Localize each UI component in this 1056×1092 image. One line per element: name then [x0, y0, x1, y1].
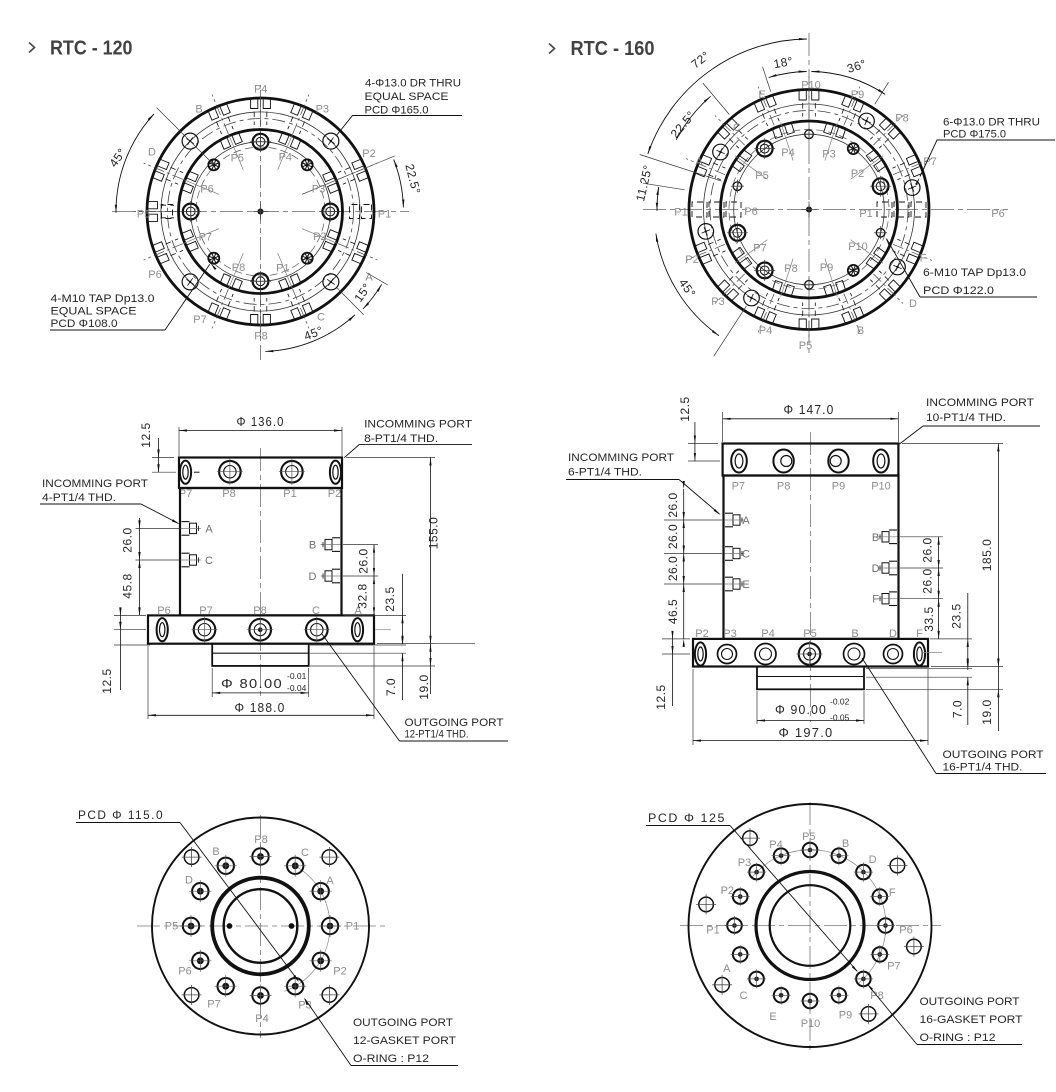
svg-text:P5: P5 [755, 170, 768, 182]
svg-text:26.0: 26.0 [121, 527, 135, 552]
svg-text:OUTGOING PORT: OUTGOING PORT [353, 1017, 453, 1029]
svg-text:155.0: 155.0 [427, 517, 441, 550]
svg-text:OUTGOING PORT: OUTGOING PORT [943, 749, 1044, 761]
svg-text:Φ 147.0: Φ 147.0 [784, 403, 835, 417]
svg-text:A: A [365, 272, 373, 284]
svg-text:B: B [309, 540, 316, 552]
svg-text:C: C [317, 312, 325, 324]
svg-text:A: A [205, 523, 213, 535]
svg-text:P1: P1 [283, 488, 296, 500]
svg-text:C: C [205, 555, 213, 567]
svg-text:OUTGOING PORT: OUTGOING PORT [920, 996, 1020, 1008]
svg-text:F: F [889, 887, 896, 899]
svg-text:P7: P7 [199, 605, 212, 617]
svg-text:P7: P7 [732, 481, 745, 493]
svg-text:P4: P4 [759, 325, 772, 337]
svg-text:INCOMMING PORT: INCOMMING PORT [364, 419, 472, 431]
svg-text:26.0: 26.0 [666, 556, 680, 581]
svg-text:P2: P2 [362, 148, 375, 160]
svg-text:185.0: 185.0 [980, 539, 994, 572]
svg-text:P4: P4 [781, 147, 794, 159]
svg-text:O-RING : P12: O-RING : P12 [920, 1032, 996, 1044]
svg-text:E: E [769, 1011, 776, 1023]
svg-text:Φ 136.0: Φ 136.0 [237, 415, 285, 429]
svg-text:P6: P6 [200, 183, 213, 195]
svg-text:B: B [851, 628, 858, 640]
svg-text:P1: P1 [346, 921, 359, 933]
svg-text:P6: P6 [157, 605, 170, 617]
svg-text:33.5: 33.5 [922, 606, 936, 631]
svg-text:F: F [920, 253, 927, 265]
svg-text:P1: P1 [706, 925, 719, 937]
svg-text:D: D [909, 298, 917, 310]
svg-text:12.5: 12.5 [139, 422, 153, 447]
svg-text:Φ 90.00: Φ 90.00 [775, 702, 827, 717]
svg-text:P4: P4 [761, 628, 774, 640]
svg-text:PCD Φ 115.0: PCD Φ 115.0 [78, 808, 164, 822]
svg-text:P10: P10 [871, 481, 891, 493]
svg-text:12.5: 12.5 [678, 396, 692, 421]
svg-text:A: A [695, 156, 703, 168]
svg-text:P6: P6 [899, 925, 912, 937]
svg-text:E: E [742, 579, 749, 591]
svg-text:P2: P2 [328, 488, 341, 500]
svg-text:26.0: 26.0 [357, 548, 371, 573]
svg-text:6-M10 TAP Dp13.0: 6-M10 TAP Dp13.0 [923, 267, 1026, 279]
svg-text:D: D [309, 571, 317, 583]
svg-text:RTC - 160: RTC - 160 [571, 37, 655, 60]
svg-text:P2: P2 [721, 885, 734, 897]
svg-text:C: C [312, 605, 320, 617]
svg-text:B: B [195, 103, 202, 115]
svg-text:23.5: 23.5 [383, 586, 397, 611]
svg-text:19.0: 19.0 [417, 674, 431, 699]
svg-text:P2: P2 [685, 254, 698, 266]
svg-text:P5: P5 [803, 628, 816, 640]
svg-text:A: A [742, 515, 750, 527]
svg-text:P5: P5 [802, 831, 815, 843]
svg-text:45.8: 45.8 [121, 573, 135, 598]
svg-text:P2: P2 [333, 966, 346, 978]
svg-text:P9: P9 [820, 262, 833, 274]
svg-text:26.0: 26.0 [921, 568, 935, 593]
svg-text:P4: P4 [769, 839, 782, 851]
svg-text:A: A [326, 875, 334, 887]
svg-text:P6: P6 [991, 208, 1004, 220]
svg-text:C: C [733, 122, 741, 134]
svg-text:23.5: 23.5 [950, 603, 964, 628]
svg-text:PCD Φ122.0: PCD Φ122.0 [923, 285, 994, 297]
svg-text:P8: P8 [222, 488, 235, 500]
svg-text:P4: P4 [255, 1013, 268, 1025]
svg-text:32.8: 32.8 [356, 583, 370, 608]
svg-text:6-Φ13.0 DR THRU: 6-Φ13.0 DR THRU [943, 117, 1040, 129]
svg-text:EQUAL SPACE: EQUAL SPACE [365, 91, 449, 103]
svg-text:-0.02: -0.02 [830, 697, 850, 707]
svg-text:P1: P1 [674, 207, 687, 219]
svg-text:P8: P8 [895, 113, 908, 125]
svg-text:P7: P7 [199, 231, 212, 243]
svg-text:P5: P5 [231, 153, 244, 165]
svg-text:C: C [301, 847, 309, 859]
svg-text:D: D [889, 628, 897, 640]
svg-text:16-PT1/4 THD.: 16-PT1/4 THD. [943, 762, 1023, 774]
svg-text:C: C [740, 990, 748, 1002]
svg-text:26.0: 26.0 [921, 537, 935, 562]
svg-text:P5: P5 [799, 340, 812, 352]
svg-text:E: E [758, 89, 765, 101]
svg-text:P10: P10 [848, 241, 868, 253]
svg-text:P3: P3 [312, 183, 325, 195]
svg-text:PCD Φ 125: PCD Φ 125 [648, 811, 726, 825]
svg-text:P10: P10 [801, 80, 821, 92]
svg-text:B: B [857, 325, 864, 337]
svg-text:EQUAL SPACE: EQUAL SPACE [51, 306, 137, 318]
svg-text:4-M10 TAP Dp13.0: 4-M10 TAP Dp13.0 [51, 293, 155, 305]
svg-text:19.0: 19.0 [980, 699, 994, 724]
svg-text:F: F [872, 594, 879, 606]
svg-text:P3: P3 [723, 628, 736, 640]
svg-text:10-PT1/4 THD.: 10-PT1/4 THD. [926, 412, 1006, 424]
svg-text:D: D [185, 875, 193, 887]
svg-text:P1: P1 [276, 263, 289, 275]
svg-text:26.0: 26.0 [666, 524, 680, 549]
svg-text:P3: P3 [822, 149, 835, 161]
svg-text:D: D [869, 854, 877, 866]
svg-text:B: B [842, 838, 849, 850]
svg-text:P7: P7 [753, 243, 766, 255]
svg-text:P6: P6 [744, 206, 757, 218]
svg-text:P1: P1 [378, 209, 391, 221]
svg-text:P3: P3 [738, 857, 751, 869]
svg-text:P7: P7 [193, 314, 206, 326]
svg-text:B: B [212, 846, 219, 858]
svg-text:P8: P8 [253, 605, 266, 617]
svg-text:PCD Φ108.0: PCD Φ108.0 [51, 318, 118, 330]
svg-text:PCD Φ165.0: PCD Φ165.0 [365, 105, 429, 117]
svg-text:P5: P5 [165, 921, 178, 933]
svg-text:12-GASKET PORT: 12-GASKET PORT [353, 1035, 456, 1047]
svg-text:16-GASKET PORT: 16-GASKET PORT [920, 1014, 1023, 1026]
svg-text:P5: P5 [137, 209, 150, 221]
svg-text:Φ 188.0: Φ 188.0 [235, 701, 286, 715]
svg-text:PCD Φ175.0: PCD Φ175.0 [943, 129, 1006, 141]
svg-text:Φ 197.0: Φ 197.0 [779, 726, 834, 740]
svg-text:D: D [148, 146, 156, 158]
svg-text:D: D [872, 563, 880, 575]
svg-text:P9: P9 [832, 481, 845, 493]
svg-text:C: C [742, 549, 750, 561]
svg-text:P8: P8 [254, 331, 267, 343]
svg-text:INCOMMING PORT: INCOMMING PORT [568, 452, 674, 464]
svg-text:P2: P2 [695, 628, 708, 640]
svg-text:12.5: 12.5 [100, 668, 114, 693]
svg-text:P3: P3 [711, 296, 724, 308]
svg-text:P3: P3 [316, 103, 329, 115]
svg-text:P9: P9 [839, 1010, 852, 1022]
svg-text:12-PT1/4 THD.: 12-PT1/4 THD. [405, 729, 469, 741]
svg-text:INCOMMING PORT: INCOMMING PORT [926, 397, 1034, 409]
svg-text:P4: P4 [254, 84, 267, 96]
svg-text:P8: P8 [254, 834, 267, 846]
svg-text:4-Φ13.0 DR THRU: 4-Φ13.0 DR THRU [365, 77, 461, 89]
svg-text:-0.04: -0.04 [287, 683, 307, 693]
svg-text:P2: P2 [851, 168, 864, 180]
svg-text:P7: P7 [207, 999, 220, 1011]
svg-text:-0.01: -0.01 [287, 671, 307, 681]
svg-text:OUTGOING PORT: OUTGOING PORT [405, 717, 504, 729]
svg-text:P8: P8 [784, 263, 797, 275]
svg-text:-0.05: -0.05 [830, 713, 850, 723]
svg-text:6-PT1/4 THD.: 6-PT1/4 THD. [568, 467, 642, 479]
svg-text:P1: P1 [859, 208, 872, 220]
svg-text:26.0: 26.0 [666, 492, 680, 517]
svg-text:46.5: 46.5 [666, 599, 680, 624]
svg-text:RTC - 120: RTC - 120 [50, 37, 133, 60]
svg-text:P6: P6 [148, 269, 161, 281]
svg-text:7.0: 7.0 [951, 700, 965, 718]
svg-text:4-PT1/4 THD.: 4-PT1/4 THD. [42, 492, 116, 504]
svg-text:7.0: 7.0 [384, 678, 398, 696]
svg-text:P2: P2 [313, 231, 326, 243]
svg-text:P7: P7 [887, 961, 900, 973]
svg-text:P8: P8 [777, 481, 790, 493]
svg-text:P9: P9 [851, 89, 864, 101]
svg-text:Φ 80.00: Φ 80.00 [221, 676, 283, 691]
svg-text:P6: P6 [178, 966, 191, 978]
svg-text:P8: P8 [232, 262, 245, 274]
svg-text:O-RING : P12: O-RING : P12 [353, 1053, 429, 1065]
svg-text:B: B [872, 532, 879, 544]
svg-text:A: A [723, 963, 731, 975]
svg-text:12.5: 12.5 [654, 684, 668, 709]
svg-text:8-PT1/4 THD.: 8-PT1/4 THD. [364, 433, 438, 445]
svg-text:P10: P10 [801, 1018, 821, 1030]
svg-text:P4: P4 [279, 151, 292, 163]
svg-text:INCOMMING PORT: INCOMMING PORT [42, 478, 148, 490]
